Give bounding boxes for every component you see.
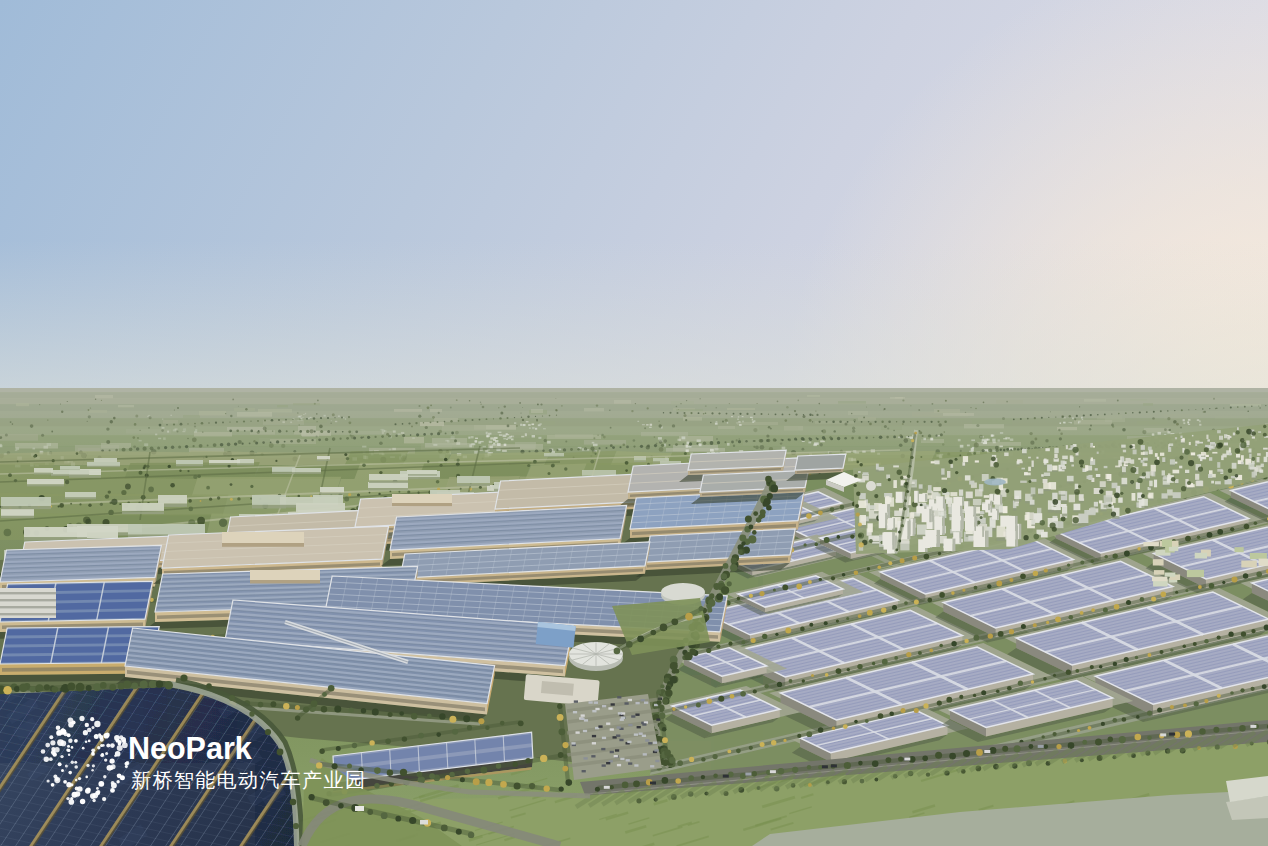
svg-text:新桥智能电动汽车产业园: 新桥智能电动汽车产业园 — [131, 769, 366, 791]
svg-text:NeoPark: NeoPark — [128, 731, 252, 765]
